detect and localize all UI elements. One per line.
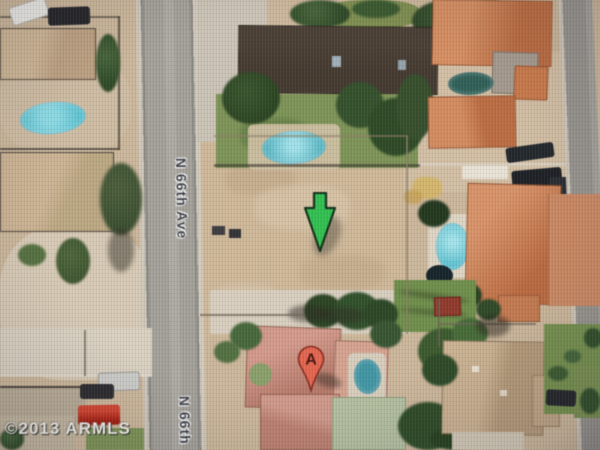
street-label-n-66th: N 66th <box>166 396 193 450</box>
tree <box>580 388 600 414</box>
skylight <box>332 56 341 67</box>
fence-line <box>200 314 304 316</box>
bush <box>564 350 581 363</box>
tree <box>352 0 400 18</box>
tree <box>422 354 458 386</box>
tree <box>222 72 280 124</box>
tree <box>100 163 142 235</box>
tree <box>584 328 600 348</box>
tree <box>214 341 240 363</box>
car-dark <box>48 6 91 25</box>
green-arrow-marker[interactable] <box>301 192 339 254</box>
copyright-watermark: ©2013 ARMLS <box>5 419 131 439</box>
roof-vent <box>472 366 479 372</box>
patio <box>452 432 524 450</box>
house-a-lower-roof <box>260 394 340 450</box>
tile-roof-house <box>428 95 517 149</box>
skylight <box>398 60 406 70</box>
house-roof <box>0 152 114 232</box>
green-roof-structure <box>332 397 406 450</box>
bush <box>548 366 568 381</box>
tree <box>370 320 402 348</box>
pin-label: A <box>305 352 317 369</box>
tree-shadow <box>108 228 134 272</box>
round-tree <box>249 363 272 386</box>
street-label-n-66th-ave: N 66th Ave <box>163 158 191 259</box>
red-pin-marker-a[interactable]: A <box>296 345 326 393</box>
tile-shed <box>513 65 548 100</box>
fence-line <box>0 148 120 150</box>
car-dark <box>80 384 114 399</box>
fence-line <box>118 16 120 150</box>
house-roof <box>441 340 545 436</box>
roof-vent <box>500 390 507 396</box>
tree-shadow <box>476 315 510 337</box>
palm-tree <box>418 200 450 227</box>
lot-mottle <box>300 255 385 290</box>
satellite-map-view: A N 66th Ave N 66th ©2013 ARMLS <box>0 0 600 450</box>
car-dark <box>546 389 577 407</box>
tree-shadow <box>320 307 364 324</box>
bush <box>18 244 46 266</box>
concrete-pad <box>0 328 152 376</box>
fence-line <box>84 330 86 376</box>
fence-line <box>214 135 408 137</box>
fence-line <box>214 164 420 167</box>
tree <box>290 0 350 28</box>
house-roof <box>0 28 96 80</box>
ac-unit <box>229 229 241 238</box>
white-shed-roof <box>462 166 508 179</box>
ac-unit <box>212 226 225 235</box>
aerial-imagery: A N 66th Ave N 66th ©2013 ARMLS <box>0 0 600 450</box>
fence-line <box>406 136 408 334</box>
tree <box>56 238 90 284</box>
tree <box>96 34 120 92</box>
car-white <box>8 0 50 26</box>
patio-tile <box>548 194 600 306</box>
